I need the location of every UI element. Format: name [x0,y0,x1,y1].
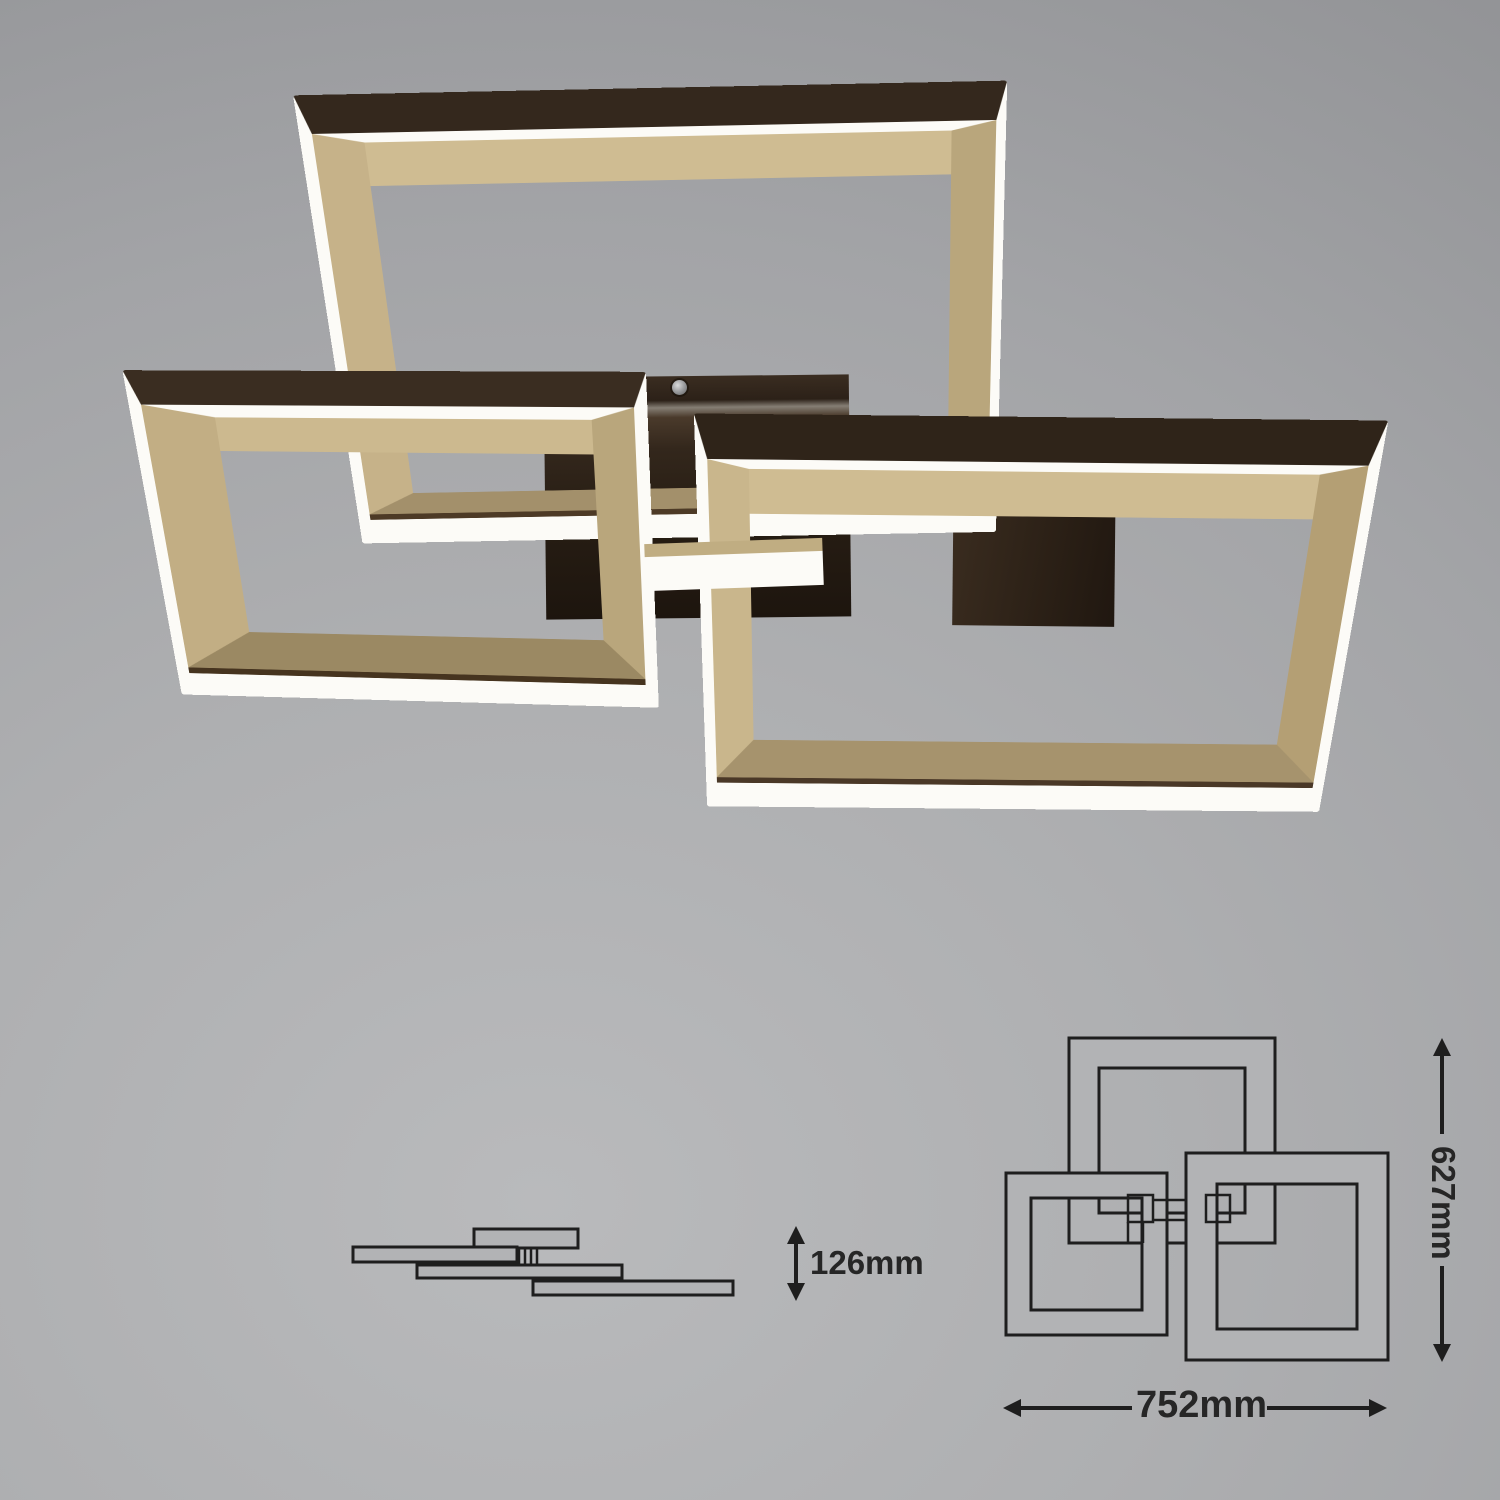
depth-dimension-label: 627mm [1424,1146,1462,1260]
width-dimension-label: 752mm [1136,1384,1267,1427]
plan-right-square [1186,1153,1388,1360]
frame-gold-top-face [215,417,604,640]
side-view-frame-profile-3 [533,1281,733,1295]
frame-gold-top-face [749,469,1320,745]
frame-top-face-band [122,370,658,708]
frame-gold-inner-face [707,459,1368,783]
plan-view-diagram [995,1030,1465,1430]
side-view-frame-profile-1 [353,1247,517,1262]
frame-shadow-line [141,405,646,685]
side-view-canopy [474,1229,578,1248]
product-image: 126mm 752mm 627mm [0,0,1500,1500]
height-dimension-label: 126mm [810,1244,924,1282]
frame-top-face-band [694,413,1389,811]
crossover-led-strip [645,551,824,591]
frame-right-square [694,413,1389,811]
interlocked-edge-crossover [644,538,824,591]
frame-shadow-line [707,459,1368,788]
plan-left-square [1006,1173,1167,1335]
side-view-frame-profile-2 [417,1265,622,1278]
frame-gold-inner-face [141,405,645,680]
height-arrow-icon [787,1226,805,1301]
plan-top-square [1069,1038,1275,1243]
side-view-connector-hatch [519,1248,537,1264]
frame-left-square [122,370,658,708]
